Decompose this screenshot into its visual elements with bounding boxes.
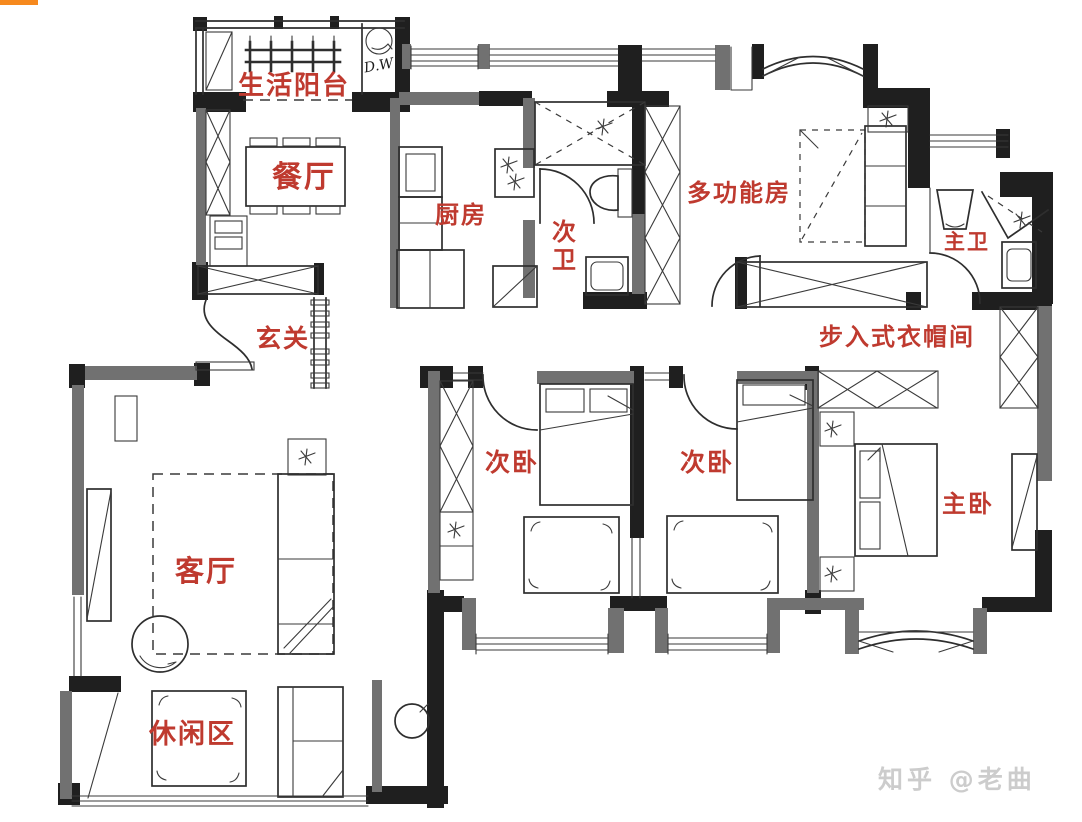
room-label-living-room: 客厅 [175, 556, 237, 588]
room-label-dining-room: 餐厅 [272, 161, 336, 194]
floor-plan-drawing [0, 0, 1082, 822]
room-label-walk-in-closet: 步入式衣帽间 [819, 324, 975, 350]
second-bedroom-right-graphics [632, 380, 813, 598]
orange-corner-marker [0, 0, 38, 5]
room-label-entryway: 玄关 [256, 325, 310, 353]
floor-plan-page: 生活阳台 餐厅 厨房 次卫 多功能房 主卫 玄关 步入式衣帽间 次卧 次卧 主卧… [0, 0, 1082, 822]
room-label-second-bathroom: 次卫 [550, 219, 580, 274]
walls-gray [60, 44, 1052, 799]
bedroom-doors-graphics [453, 371, 938, 430]
room-label-kitchen: 厨房 [435, 202, 487, 228]
room-label-second-bedroom-right: 次卧 [680, 449, 734, 477]
room-label-master-bedroom: 主卧 [942, 491, 994, 517]
room-label-multifunction-room: 多功能房 [687, 180, 791, 206]
room-label-laundry-balcony: 生活阳台 [238, 72, 350, 101]
room-label-second-bedroom-left: 次卧 [485, 449, 539, 477]
watermark-text: 知乎 @老曲 [878, 760, 1036, 796]
room-label-master-bathroom: 主卫 [944, 231, 990, 254]
second-bedroom-left-graphics [440, 381, 633, 593]
room-label-leisure-area: 休闲区 [149, 720, 236, 750]
living-room-graphics [74, 396, 334, 676]
